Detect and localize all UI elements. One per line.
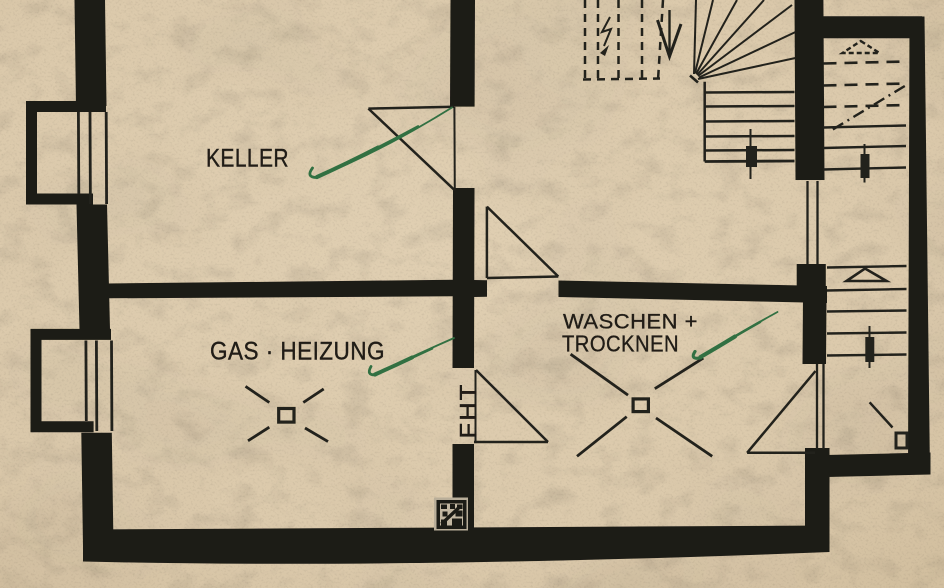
svg-text:TROCKNEN: TROCKNEN xyxy=(562,331,679,357)
svg-text:FHT: FHT xyxy=(455,383,481,439)
svg-text:KELLER: KELLER xyxy=(206,145,289,173)
svg-text:GAS · HEIZUNG: GAS · HEIZUNG xyxy=(210,338,385,366)
